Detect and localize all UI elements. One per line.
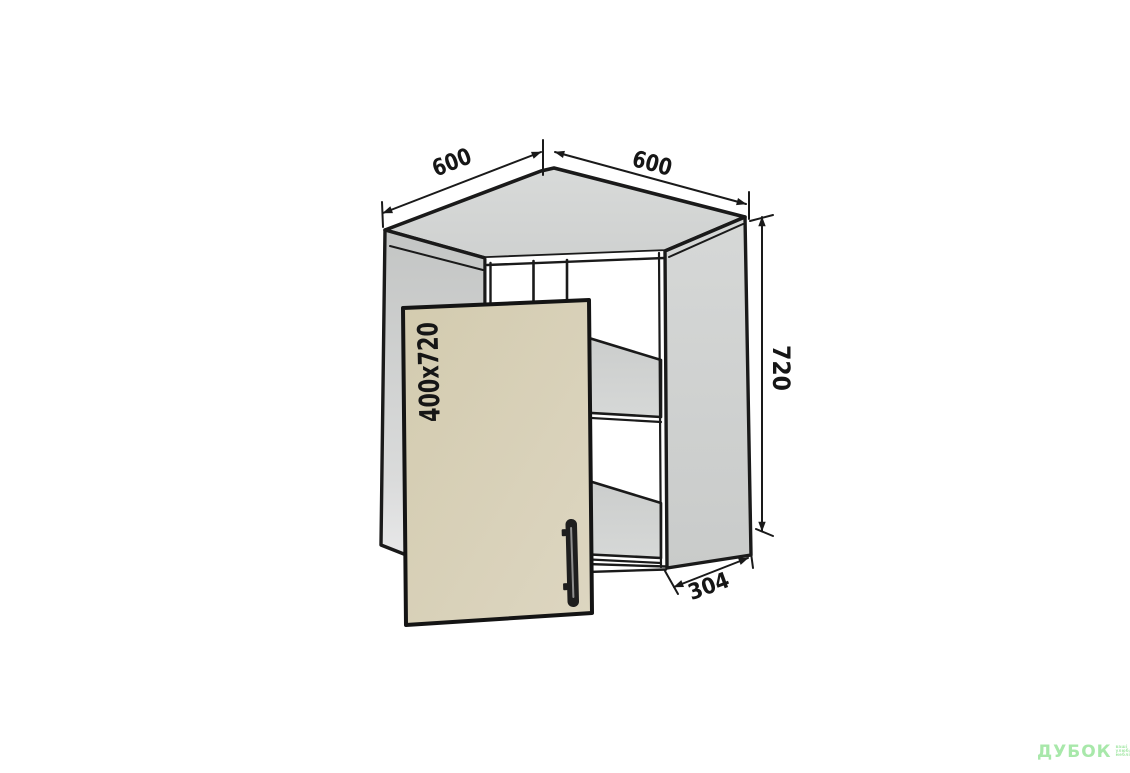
cabinet-door: 400x720 bbox=[403, 300, 592, 625]
door-size-label: 400x720 bbox=[411, 322, 447, 423]
cabinet-right-side-panel bbox=[665, 217, 751, 568]
dimension-top-left-width-label: 600 bbox=[429, 144, 476, 183]
screenshot-canvas: 400x720 bbox=[0, 0, 1130, 773]
watermark-tagline-line: меблі bbox=[1116, 753, 1130, 757]
watermark-brand: ДУБОК bbox=[1037, 744, 1112, 760]
watermark: ДУБОК ваші улюблені меблі bbox=[1037, 744, 1130, 760]
dimension-side-depth-label: 304 bbox=[685, 568, 733, 606]
cabinet-diagram: 400x720 bbox=[0, 0, 1130, 773]
dimension-top-right-width-label: 600 bbox=[629, 146, 674, 181]
watermark-tagline: ваші улюблені меблі bbox=[1116, 744, 1130, 757]
dimension-height-label: 720 bbox=[767, 345, 795, 391]
